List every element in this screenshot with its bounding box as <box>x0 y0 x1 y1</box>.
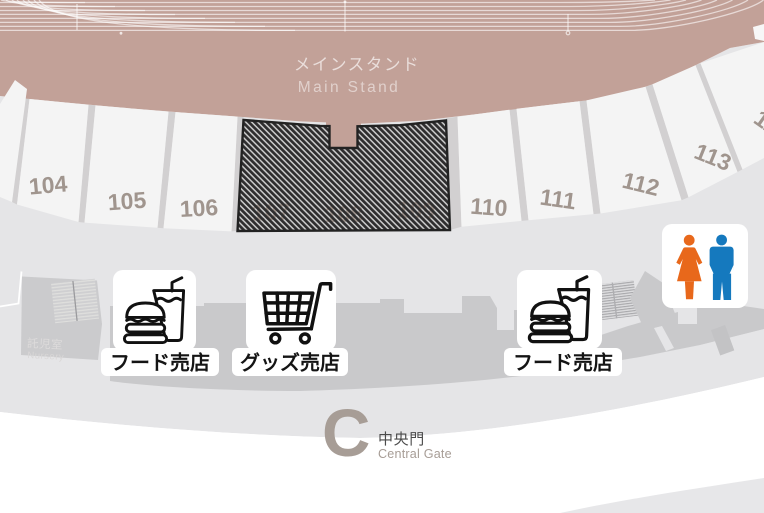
svg-text:フード売店: フード売店 <box>110 352 210 375</box>
svg-text:Nursery: Nursery <box>27 350 64 363</box>
svg-text:111: 111 <box>538 184 577 215</box>
svg-text:106: 106 <box>179 194 219 222</box>
svg-text:中央門: 中央門 <box>378 431 425 448</box>
svg-text:フード売店: フード売店 <box>513 352 613 375</box>
svg-text:Central Gate: Central Gate <box>378 447 452 461</box>
svg-text:104: 104 <box>28 170 69 199</box>
svg-text:Main Stand: Main Stand <box>298 79 400 96</box>
svg-text:C: C <box>322 396 370 471</box>
svg-text:メインスタンド: メインスタンド <box>294 55 420 74</box>
svg-text:グッズ売店: グッズ売店 <box>240 351 340 375</box>
svg-text:110: 110 <box>470 193 509 222</box>
svg-text:105: 105 <box>107 187 147 216</box>
